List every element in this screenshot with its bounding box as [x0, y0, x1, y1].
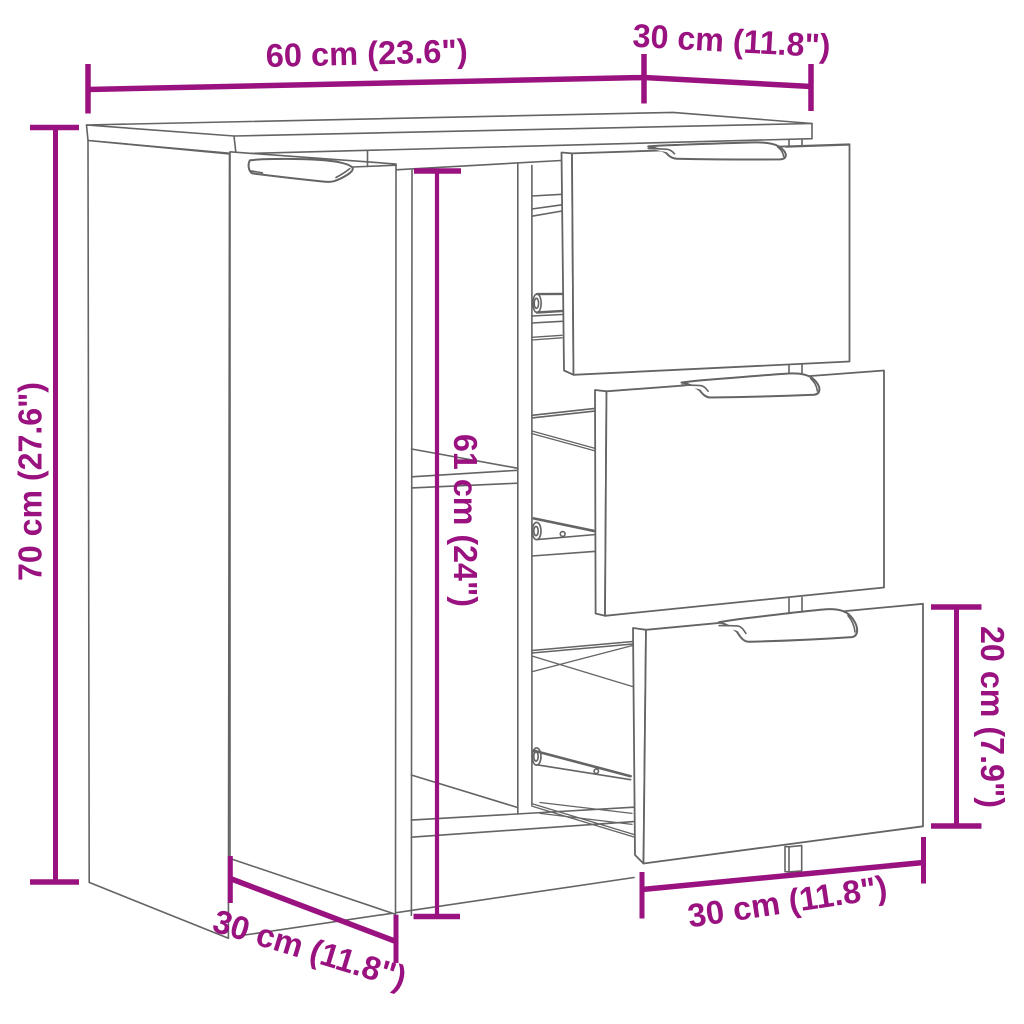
svg-text:70 cm (27.6"): 70 cm (27.6") — [12, 382, 49, 581]
svg-text:61 cm (24"): 61 cm (24") — [447, 434, 484, 607]
svg-text:20 cm (7.9"): 20 cm (7.9") — [974, 626, 1011, 808]
svg-text:60 cm (23.6"): 60 cm (23.6") — [265, 32, 468, 74]
